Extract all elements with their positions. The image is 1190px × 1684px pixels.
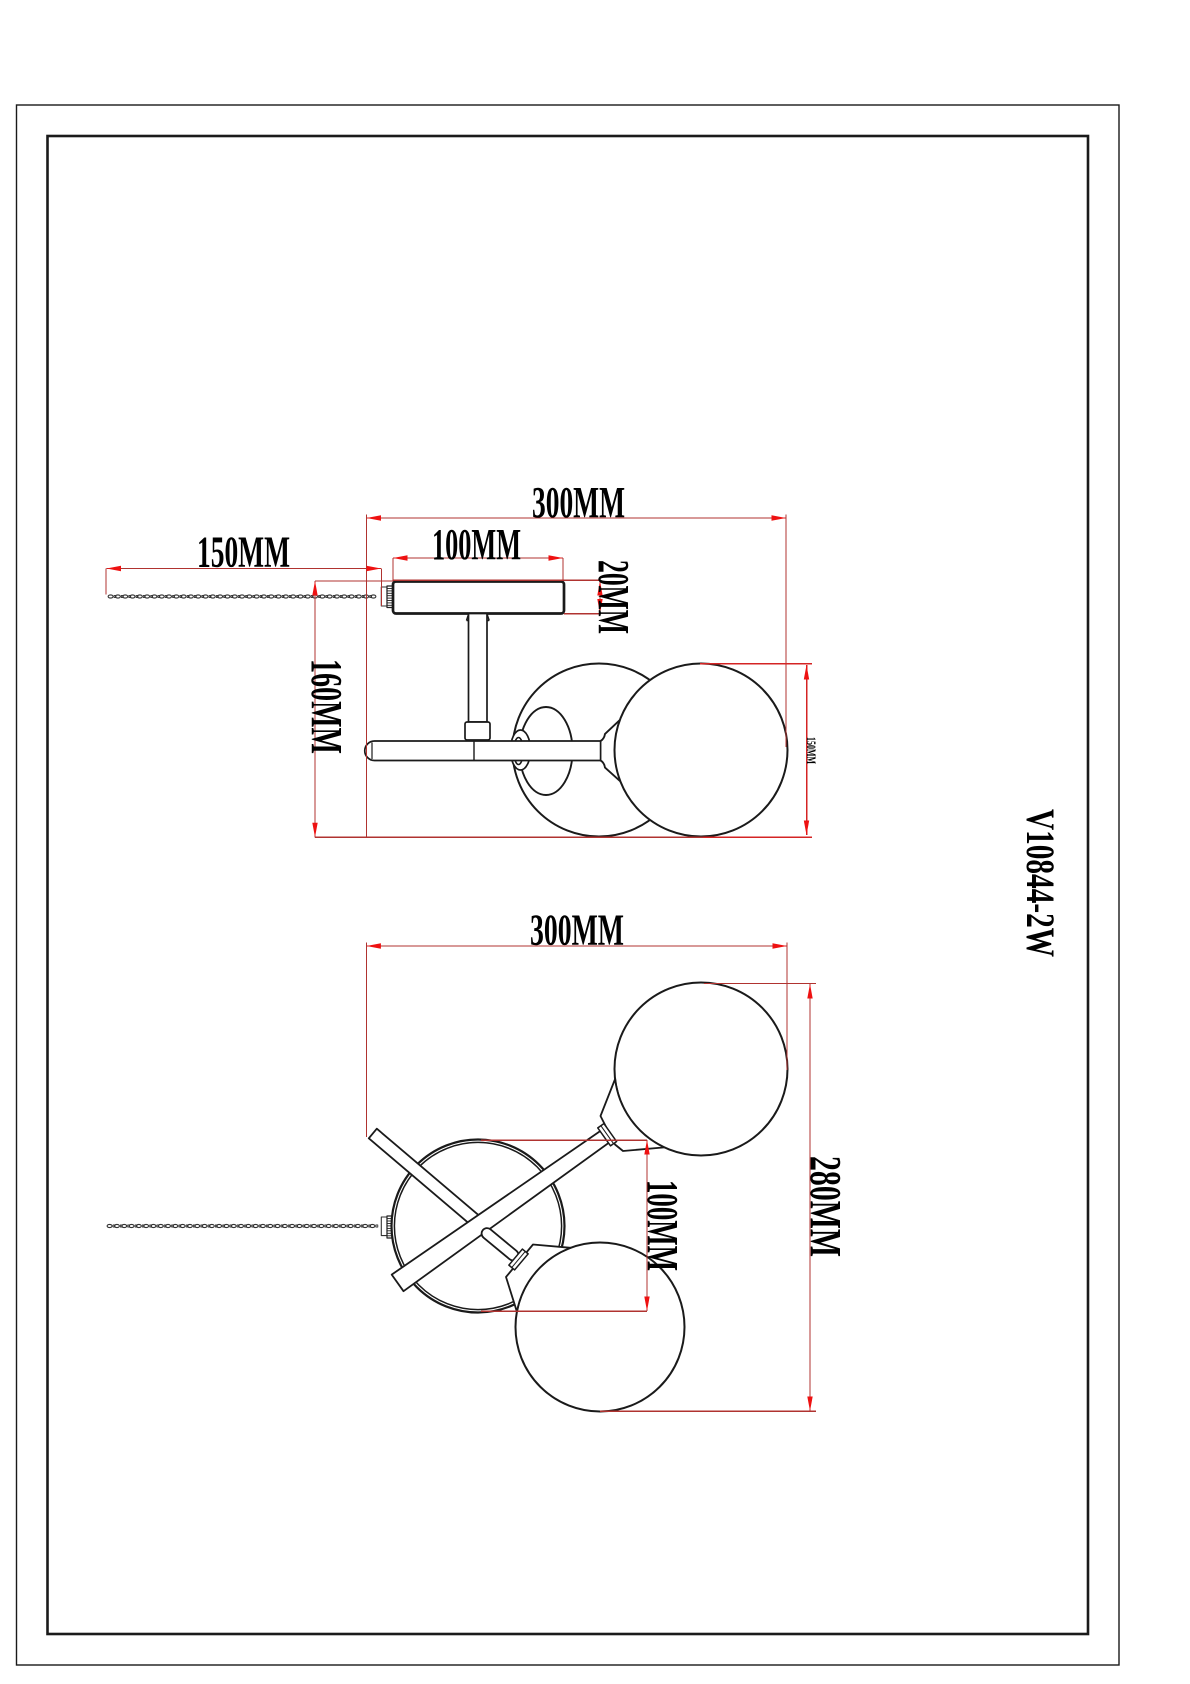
svg-text:V10844-2W: V10844-2W [1018, 809, 1063, 957]
svg-text:150MM: 150MM [197, 528, 290, 577]
svg-text:150MM: 150MM [804, 737, 819, 764]
svg-text:20MM: 20MM [589, 560, 638, 634]
svg-text:300MM: 300MM [530, 906, 624, 955]
svg-text:280MM: 280MM [801, 1156, 850, 1257]
svg-text:100MM: 100MM [638, 1180, 687, 1271]
svg-text:100MM: 100MM [432, 520, 521, 569]
svg-text:160MM: 160MM [302, 659, 351, 754]
svg-text:300MM: 300MM [532, 478, 625, 527]
